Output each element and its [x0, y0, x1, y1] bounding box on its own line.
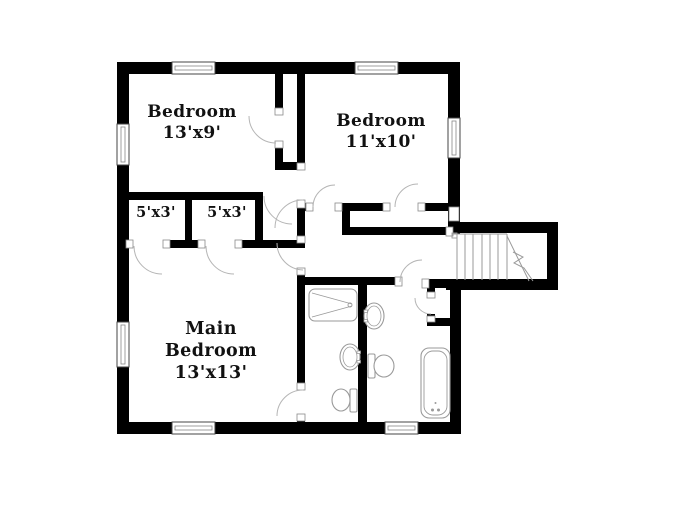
bathtub-hall-bath-faucet-1 [431, 409, 434, 412]
hallbath-closet-door-jamb-0 [427, 292, 435, 298]
bedroom2-closet-door-jamb-0 [383, 203, 390, 211]
wall-exterior-right-lower [450, 279, 461, 434]
bedroom1-hall-door-jamb-0 [297, 163, 305, 170]
mainbath-door-jamb-1 [297, 414, 305, 421]
hallbath-entry-door-jamb-0 [395, 277, 402, 286]
bedroom1-closet-door-jamb-0 [275, 108, 283, 115]
toilet-hall-bath-bowl [374, 355, 394, 377]
hallbath-closet-door-swing-arc [415, 298, 431, 314]
bedroom2-entry-door-jamb-1 [335, 203, 342, 211]
window-bedroom1-left [117, 124, 129, 165]
cap-bedroom2-right-wall [449, 207, 459, 221]
window-bedroom1-top [172, 62, 215, 74]
bedroom1-hall-door-jamb-1 [297, 200, 305, 208]
toilet-main-bath-bowl [332, 389, 350, 411]
wall-hallcloset-bottom [342, 227, 446, 235]
bedroom2-entry-door-jamb-0 [306, 203, 313, 211]
wall-exterior-top [117, 62, 458, 74]
hallbath-entry-door-swing-arc [400, 260, 422, 282]
wall-mainbath-left [297, 285, 305, 390]
bathtub-hall-bath-drain [435, 402, 437, 404]
wall-stair-bottom [446, 279, 558, 290]
bedroom2-closet-door-swing-arc [395, 184, 418, 207]
hallbath-closet-door-jamb-1 [427, 316, 435, 322]
closet-left-door-swing-arc [134, 246, 162, 274]
window-mainbedroom-left [117, 322, 129, 367]
window-mainbedroom-bottom [172, 422, 215, 434]
bedroom2-entry-door-swing-arc [313, 185, 335, 207]
closet-right-door-swing-arc [206, 246, 234, 274]
window-hallbath-bottom [385, 422, 418, 434]
mainbath-door-swing-arc [277, 390, 303, 416]
wall-stair-top [448, 222, 558, 233]
stairs-break-line [507, 236, 529, 281]
wall-closets-right [255, 192, 263, 248]
stairs-break-zigzag [513, 252, 533, 281]
closet-left-door-jamb-0 [126, 240, 133, 248]
wall-baths-top [303, 277, 400, 285]
mainbedroom-hall-door-jamb-0 [297, 236, 305, 243]
toilet-main-bath-tank [350, 389, 357, 412]
closet-right-door-jamb-0 [198, 240, 205, 248]
floor-plan-drawing [0, 0, 700, 509]
floor-plan-canvas: Bedroom 13'x9' Bedroom 11'x10' 5'x3' 5'x… [0, 0, 700, 509]
window-bedroom2-top [355, 62, 398, 74]
sink-main-bath-faucet-1 [357, 351, 361, 354]
bathtub-hall-bath [421, 348, 450, 418]
sink-hall-bath-faucet-1 [364, 310, 368, 313]
sink-main-bath-faucet-2 [357, 361, 361, 364]
bedroom2-closet-door-jamb-1 [418, 203, 425, 211]
bathtub-hall-bath-faucet-2 [437, 409, 440, 412]
mainbath-door-jamb-0 [297, 383, 305, 390]
wall-bedroom2-left [297, 74, 305, 170]
hallbath-entry-door-jamb-1 [422, 279, 429, 288]
wall-mainbedroom-top-3 [235, 240, 305, 248]
closet-right-door-jamb-1 [235, 240, 242, 248]
closet-left-door-jamb-1 [163, 240, 170, 248]
bedroom1-closet-door-swing-arc [249, 116, 276, 143]
bedroom1-entry-arc-swing-arc [264, 196, 292, 224]
sink-hall-bath-faucet-2 [364, 320, 368, 323]
window-bedroom2-right [448, 118, 460, 158]
bedroom1-closet-door-jamb-1 [275, 141, 283, 148]
